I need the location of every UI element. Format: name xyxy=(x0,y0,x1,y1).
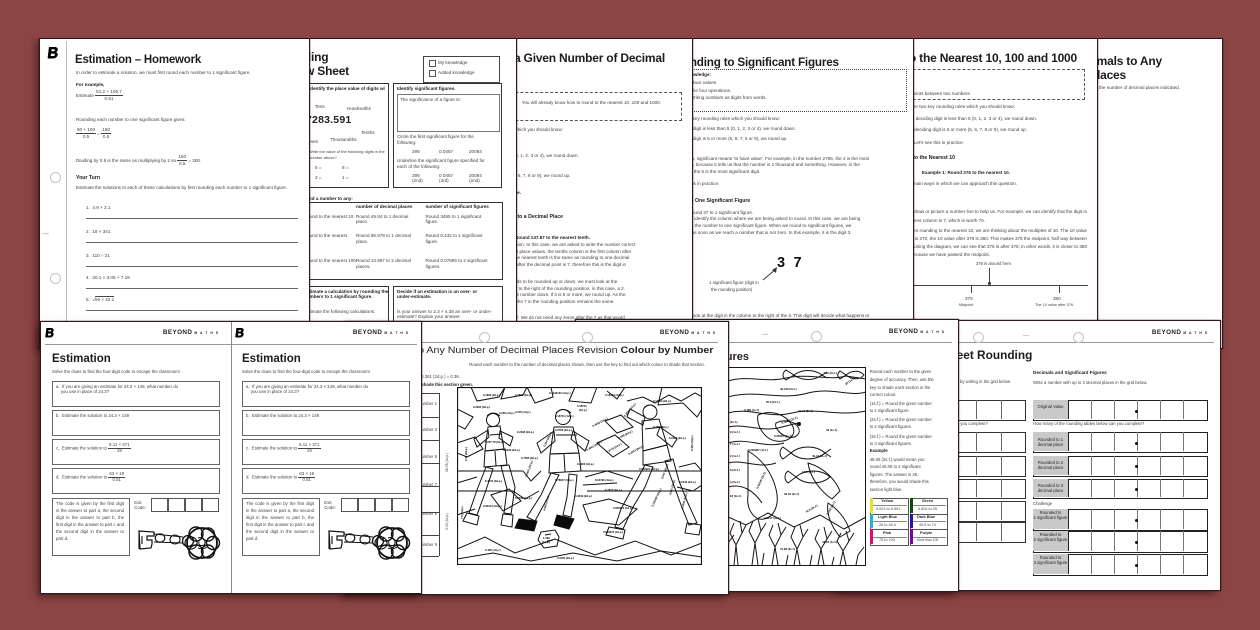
svg-text:2.508 (2d.p.): 2.508 (2d.p.) xyxy=(618,429,634,440)
svg-text:0.3963 (4d.p.): 0.3963 (4d.p.) xyxy=(577,462,594,466)
svg-text:8.7672 (2d.p.): 8.7672 (2d.p.) xyxy=(605,488,622,492)
svg-text:9.285 (1d.p.): 9.285 (1d.p.) xyxy=(653,425,669,429)
svg-text:4.046 (2d.p.): 4.046 (2d.p.) xyxy=(542,495,550,511)
svg-text:3.139499 (4d.p.): 3.139499 (4d.p.) xyxy=(650,487,662,507)
svg-text:49.02 (2s.f.): 49.02 (2s.f.) xyxy=(784,492,799,496)
svg-text:0.2084 (3d.p.): 0.2084 (3d.p.) xyxy=(473,405,490,409)
svg-text:43 (1s.f.): 43 (1s.f.) xyxy=(826,428,837,432)
svg-text:0.466 (1d.p.): 0.466 (1d.p.) xyxy=(485,548,501,552)
svg-text:18 (3s.f.): 18 (3s.f.) xyxy=(730,494,741,498)
svg-text:9 (1s.f.): 9 (1s.f.) xyxy=(730,430,740,434)
svg-text:7.6 (1d.p.): 7.6 (1d.p.) xyxy=(460,506,464,519)
svg-text:3 (3s.f.): 3 (3s.f.) xyxy=(730,480,740,484)
svg-text:0.489 (1s.f.): 0.489 (1s.f.) xyxy=(744,408,759,412)
svg-text:6 (3s.f.): 6 (3s.f.) xyxy=(730,468,740,472)
svg-text:0.9649 (2d.p.): 0.9649 (2d.p.) xyxy=(575,494,592,498)
svg-text:149 (1s.f.): 149 (1s.f.) xyxy=(802,470,815,474)
svg-text:4.248 (1d.p.): 4.248 (1d.p.) xyxy=(515,410,531,414)
svg-text:0.18194 (3d.p.): 0.18194 (3d.p.) xyxy=(605,393,624,397)
svg-text:49.44 (2s.f.): 49.44 (2s.f.) xyxy=(812,454,827,458)
svg-text:0.2396 (2d.p.): 0.2396 (2d.p.) xyxy=(517,430,534,434)
svg-text:0.549921 (4d.p.): 0.549921 (4d.p.) xyxy=(639,467,659,471)
svg-text:74.6 (2s.f.): 74.6 (2s.f.) xyxy=(805,503,819,513)
svg-text:(2s.f.): (2s.f.) xyxy=(730,420,738,424)
svg-text:5.18721: 5.18721 xyxy=(577,404,587,408)
svg-text:0.465 (3d.p.): 0.465 (3d.p.) xyxy=(690,435,694,451)
svg-text:5.267.78 (3d.p.): 5.267.78 (3d.p.) xyxy=(485,440,504,444)
svg-text:0.78847 (3d.p.): 0.78847 (3d.p.) xyxy=(555,478,574,482)
svg-text:0.5017 (3s.f.): 0.5017 (3s.f.) xyxy=(764,516,781,520)
svg-text:0.3165 (2d.p.): 0.3165 (2d.p.) xyxy=(557,556,574,560)
svg-text:0.666674 (4d.p.): 0.666674 (4d.p.) xyxy=(613,506,633,510)
svg-text:0.1036 (2d.p.): 0.1036 (2d.p.) xyxy=(503,448,520,452)
svg-text:7 (1s.f.): 7 (1s.f.) xyxy=(730,442,740,446)
svg-text:0.00097 (1s.f.): 0.00097 (1s.f.) xyxy=(774,434,792,438)
svg-text:0.2042 (2d.p.): 0.2042 (2d.p.) xyxy=(679,480,696,484)
svg-text:0.05245 (3s.f.): 0.05245 (3s.f.) xyxy=(755,471,766,489)
svg-text:0.1896 (3d.p.): 0.1896 (3d.p.) xyxy=(515,393,532,397)
svg-text:47.32 (1s.f.): 47.32 (1s.f.) xyxy=(822,540,837,544)
svg-text:0.7585 (3d.p.): 0.7585 (3d.p.) xyxy=(521,456,538,460)
svg-text:0.666674 (4d.p.): 0.666674 (4d.p.) xyxy=(603,530,623,534)
svg-text:8.4731 (3d.p.): 8.4731 (3d.p.) xyxy=(485,479,502,483)
svg-text:0.2243 (2d.p.): 0.2243 (2d.p.) xyxy=(628,444,645,456)
svg-text:0.4942132 (4d.p.): 0.4942132 (4d.p.) xyxy=(549,391,571,395)
svg-text:9.63314 (3d.p.): 9.63314 (3d.p.) xyxy=(483,504,502,508)
svg-text:1.369: 1.369 xyxy=(543,536,550,540)
svg-text:2 (1s.f.): 2 (1s.f.) xyxy=(730,454,740,458)
svg-text:5.18721 (1d.p.): 5.18721 (1d.p.) xyxy=(555,414,574,418)
svg-text:(1d.p.): (1d.p.) xyxy=(542,540,550,544)
svg-text:25 (1s.f.): 25 (1s.f.) xyxy=(844,376,856,386)
svg-text:0.5526 (1d.p.): 0.5526 (1d.p.) xyxy=(515,496,532,500)
svg-text:8.2719 (1d.p.): 8.2719 (1d.p.) xyxy=(606,442,623,454)
svg-text:49.449 (3s.f.): 49.449 (3s.f.) xyxy=(780,387,797,391)
svg-text:0.1890 (2d.p.): 0.1890 (2d.p.) xyxy=(483,393,500,397)
svg-text:8.0197 (2d.p.): 8.0197 (2d.p.) xyxy=(669,436,686,440)
svg-text:25.3 (2s.f.): 25.3 (2s.f.) xyxy=(766,400,780,404)
svg-text:0.000967 (1s.f.): 0.000967 (1s.f.) xyxy=(748,448,768,452)
svg-text:74.98 (2s.f.): 74.98 (2s.f.) xyxy=(780,547,795,551)
svg-text:74.41 (2s.f.): 74.41 (2s.f.) xyxy=(798,409,813,413)
svg-text:4.248 (1d.p.): 4.248 (1d.p.) xyxy=(499,411,515,415)
svg-text:0.2785 (2d.p.): 0.2785 (2d.p.) xyxy=(555,428,572,432)
svg-text:0.4696 (1d.p.): 0.4696 (1d.p.) xyxy=(623,402,637,418)
svg-text:2.38 (2d.p.): 2.38 (2d.p.) xyxy=(464,447,468,461)
svg-text:8.04796 (4d.p.): 8.04796 (4d.p.) xyxy=(595,478,614,482)
svg-text:(1d.p.): (1d.p.) xyxy=(579,408,587,412)
svg-text:142 (2s.f.): 142 (2s.f.) xyxy=(824,371,837,375)
svg-text:0.5861 (2d.p.): 0.5861 (2d.p.) xyxy=(524,460,534,477)
svg-text:0.11163 (2d.p.): 0.11163 (2d.p.) xyxy=(653,399,671,403)
